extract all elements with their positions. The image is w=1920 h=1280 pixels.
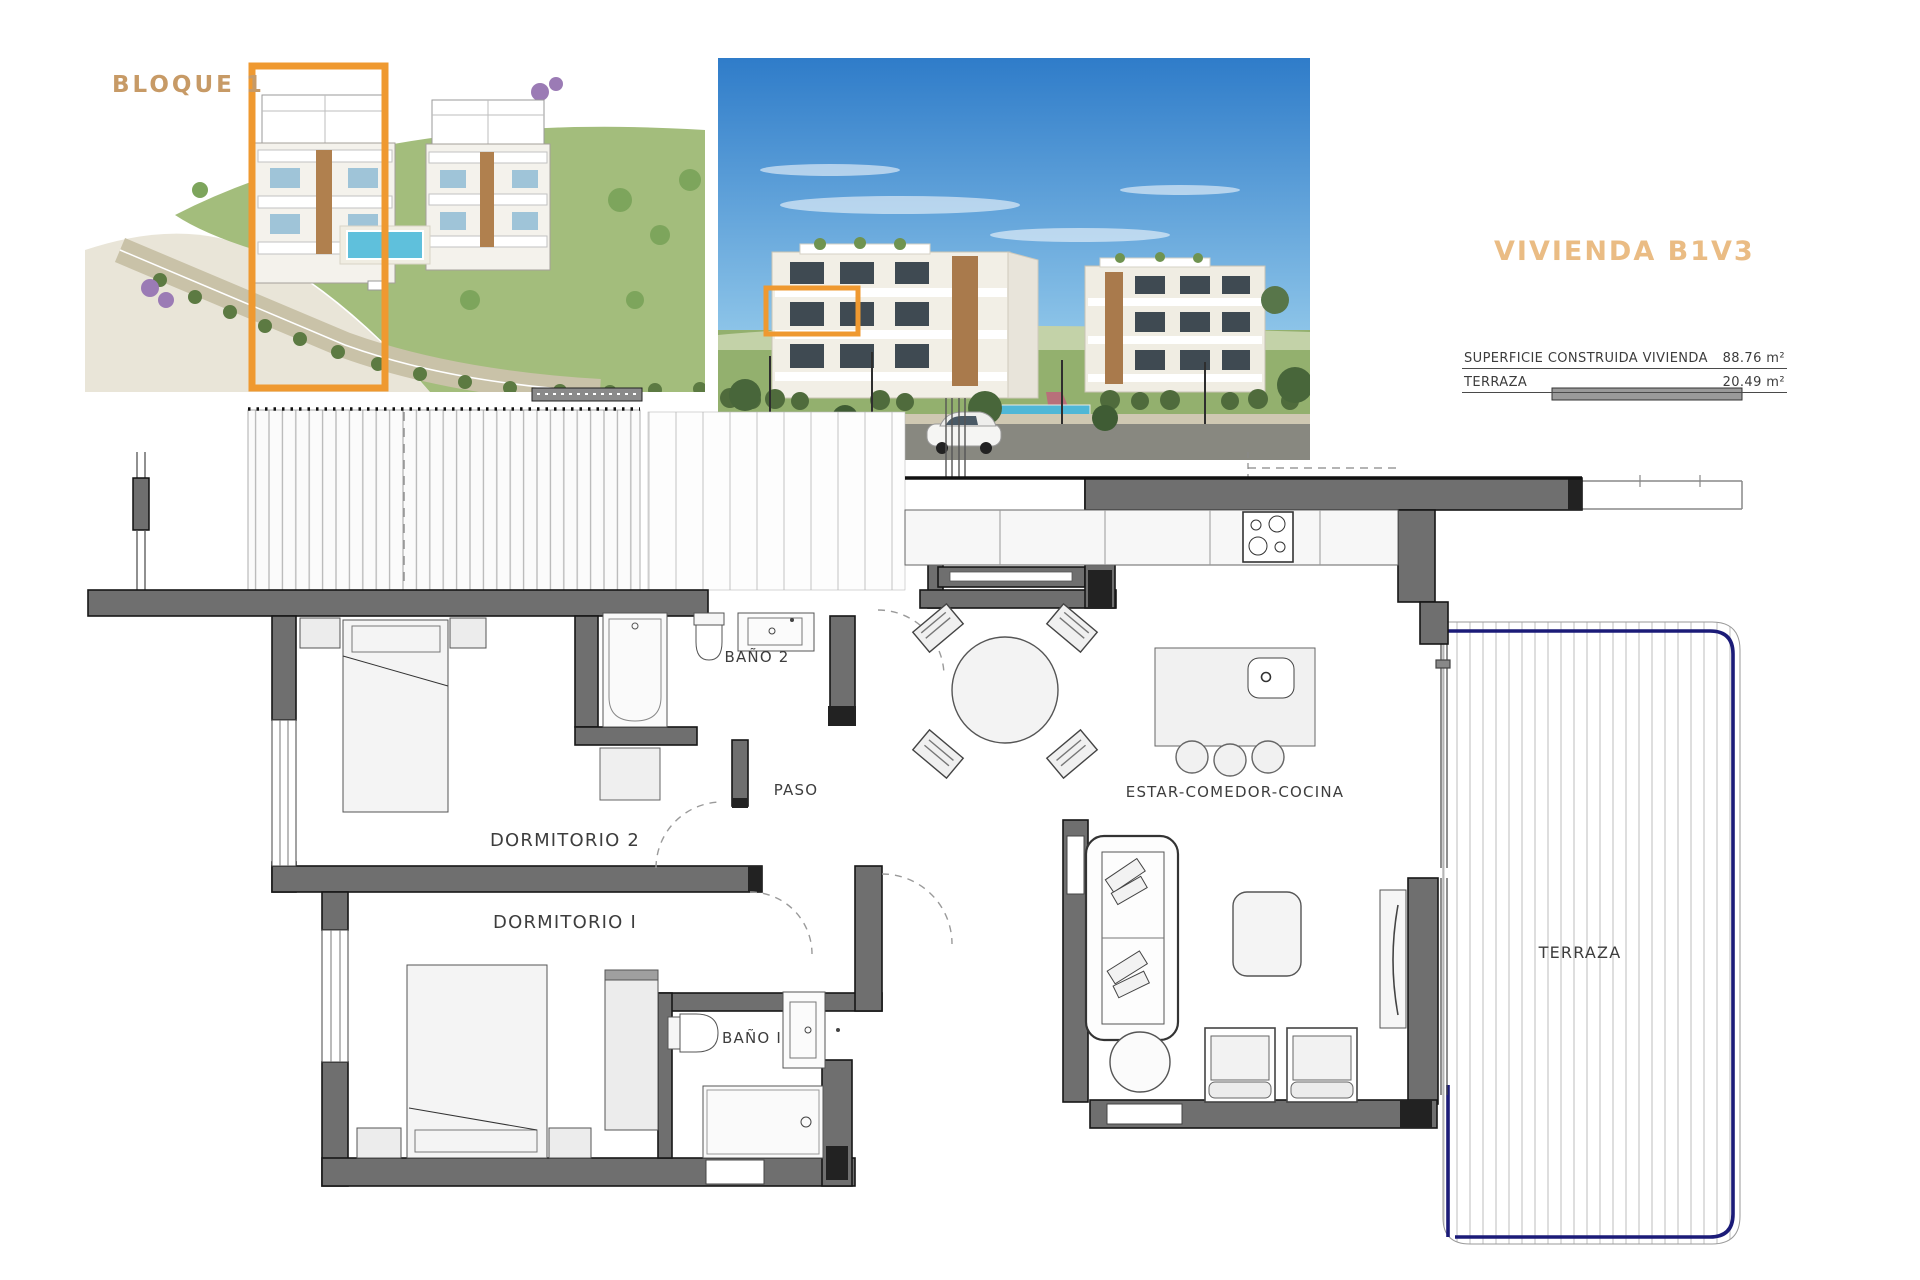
room-label-bano1: BAÑO I — [722, 1028, 782, 1047]
aerial-building-2 — [426, 100, 550, 270]
room-label-terraza: TERRAZA — [1538, 943, 1622, 962]
bathtub — [603, 613, 667, 727]
room-label-dormitorio1: DORMITORIO I — [493, 912, 637, 933]
photo-render — [718, 58, 1313, 460]
floor-plan-canvas: DORMITORIO 2 DORMITORIO I BAÑO 2 BAÑO I … — [0, 0, 1920, 1280]
bed-dormitorio1 — [357, 965, 591, 1158]
bloque-1-label: BLOQUE 1 — [112, 72, 265, 98]
dining-table — [913, 604, 1097, 778]
area-row-value: 88.76 m² — [1723, 351, 1785, 366]
sofa — [1086, 836, 1178, 1040]
floor-plan: DORMITORIO 2 DORMITORIO I BAÑO 2 BAÑO I … — [88, 388, 1742, 1244]
room-label-estar: ESTAR-COMEDOR-COCINA — [1126, 783, 1344, 801]
photo-building-left — [772, 237, 1038, 398]
fence-post — [133, 452, 149, 590]
aerial-render — [85, 0, 707, 399]
bed-dormitorio2 — [300, 618, 486, 812]
area-row-superficie: SUPERFICIE CONSTRUIDA VIVIENDA 88.76 m² — [1462, 348, 1787, 369]
toilet-bano2 — [694, 613, 724, 660]
coffee-table — [1233, 892, 1301, 976]
armchair-1 — [1205, 1028, 1275, 1102]
area-table: SUPERFICIE CONSTRUIDA VIVIENDA 88.76 m² … — [1462, 348, 1787, 396]
plan-sheet: DORMITORIO 2 DORMITORIO I BAÑO 2 BAÑO I … — [0, 0, 1920, 1280]
room-label-dormitorio2: DORMITORIO 2 — [490, 830, 640, 851]
area-row-value: 20.49 m² — [1723, 375, 1785, 390]
toilet-bano1 — [668, 1014, 718, 1052]
island-stools — [1176, 741, 1284, 776]
armchair-2 — [1287, 1028, 1357, 1102]
hob — [1243, 512, 1293, 562]
kitchen-counter — [905, 510, 1398, 565]
room-label-paso: PASO — [774, 781, 818, 799]
sink-bano2 — [738, 613, 814, 651]
wardrobe — [605, 970, 658, 1130]
room-label-bano2: BAÑO 2 — [724, 647, 789, 666]
area-row-label: TERRAZA — [1464, 375, 1527, 390]
kitchen-island — [1155, 648, 1315, 746]
side-table — [1110, 1032, 1170, 1092]
area-row-label: SUPERFICIE CONSTRUIDA VIVIENDA — [1464, 351, 1708, 366]
vivienda-title: VIVIENDA B1V3 — [1494, 236, 1755, 267]
tv-unit — [1380, 890, 1406, 1028]
shower — [703, 1086, 823, 1158]
desk — [600, 748, 660, 800]
photo-building-right — [1085, 252, 1265, 392]
terrace-deck — [1436, 622, 1740, 1244]
area-row-terraza: TERRAZA 20.49 m² — [1462, 372, 1787, 393]
